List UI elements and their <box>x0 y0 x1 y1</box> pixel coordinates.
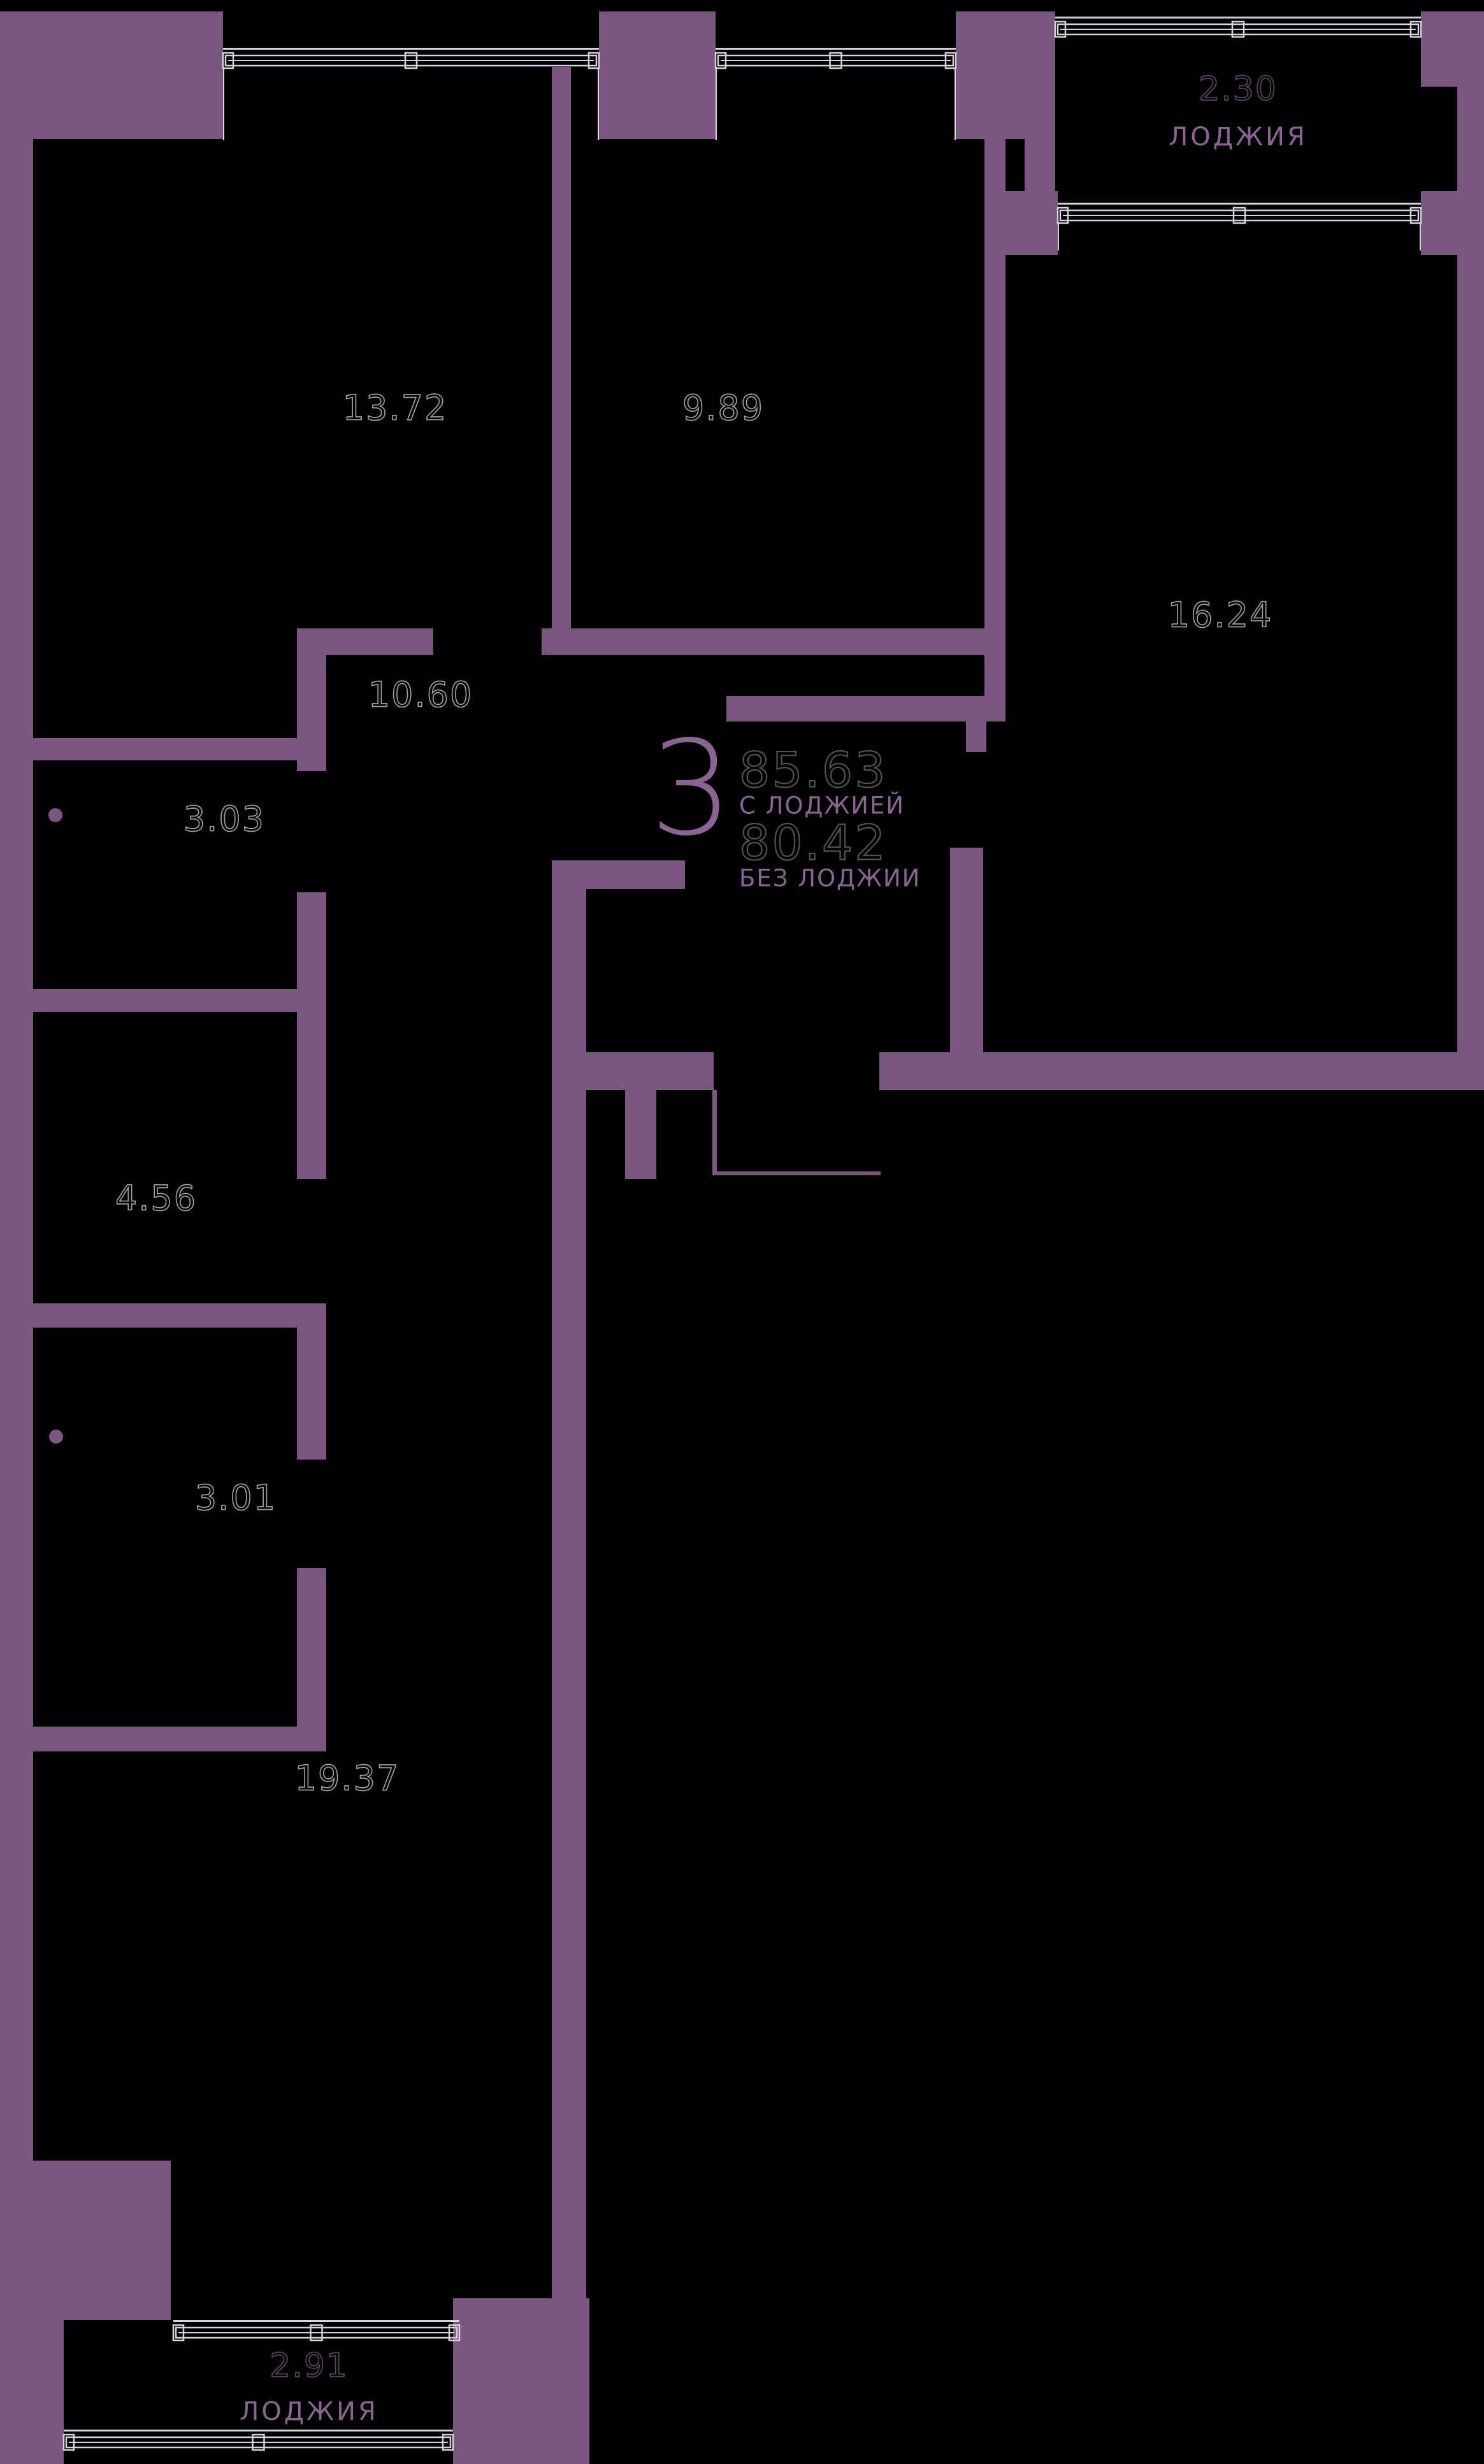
loggia-top-area: 2.30 <box>1199 70 1278 108</box>
wall-segment <box>453 2298 589 2464</box>
wall-segment <box>297 628 326 771</box>
wall-segment <box>712 1090 717 1174</box>
wall-segment <box>326 628 433 655</box>
wall-segment <box>0 2161 171 2320</box>
room-area-room-13-72: 13.72 <box>343 388 448 428</box>
wall-segment <box>1005 191 1058 255</box>
room-area-hall-10-60: 10.60 <box>368 675 473 715</box>
wall-segment <box>297 892 326 1179</box>
wall-segment <box>726 696 986 721</box>
wall-segment <box>956 11 1025 139</box>
wall-segment <box>552 67 571 628</box>
wall-segment <box>33 1303 326 1328</box>
room-area-room-3-03: 3.03 <box>184 799 265 839</box>
wall-segment <box>0 11 223 139</box>
loggia-top-label: ЛОДЖИЯ <box>1169 122 1308 152</box>
unit-area-without-loggia: 80.42 <box>739 815 888 871</box>
wall-segment <box>1457 11 1484 1090</box>
floor-plan: 2.30 ЛОДЖИЯ 2.91 ЛОДЖИЯ 3 85.63 С ЛОДЖИЕ… <box>0 0 1484 2464</box>
room-area-room-9-89: 9.89 <box>682 388 764 428</box>
door-pivot-dot <box>48 808 62 822</box>
loggia-bottom-area: 2.91 <box>270 2347 349 2385</box>
unit-number: 3 <box>650 713 733 865</box>
room-area-room-3-01: 3.01 <box>195 1478 277 1518</box>
wall-segment <box>879 1052 1484 1090</box>
unit-without-loggia-label: БЕЗ ЛОДЖИИ <box>739 865 921 892</box>
room-area-room-16-24: 16.24 <box>1168 595 1273 635</box>
wall-segment <box>586 1052 714 1090</box>
loggia-bottom-label: ЛОДЖИЯ <box>240 2397 378 2426</box>
wall-segment <box>33 989 326 1012</box>
wall-segment <box>33 1727 326 1751</box>
plan-background <box>0 0 1484 2464</box>
room-area-room-4-56: 4.56 <box>115 1178 197 1219</box>
wall-segment <box>1421 191 1457 255</box>
wall-segment <box>297 1568 326 1751</box>
wall-segment <box>599 11 716 139</box>
wall-segment <box>984 139 1005 721</box>
wall-segment <box>0 11 33 2464</box>
wall-segment <box>33 2320 64 2464</box>
wall-segment <box>297 1319 326 1460</box>
wall-segment <box>542 628 984 655</box>
wall-segment <box>33 738 326 760</box>
unit-area-with-loggia: 85.63 <box>739 742 888 799</box>
wall-segment <box>552 860 586 2298</box>
wall-segment <box>712 1171 881 1175</box>
wall-segment <box>966 721 986 752</box>
door-pivot-dot <box>49 1430 63 1444</box>
wall-segment <box>625 1090 656 1179</box>
room-area-room-19-37: 19.37 <box>295 1758 400 1799</box>
wall-segment <box>950 848 983 1052</box>
